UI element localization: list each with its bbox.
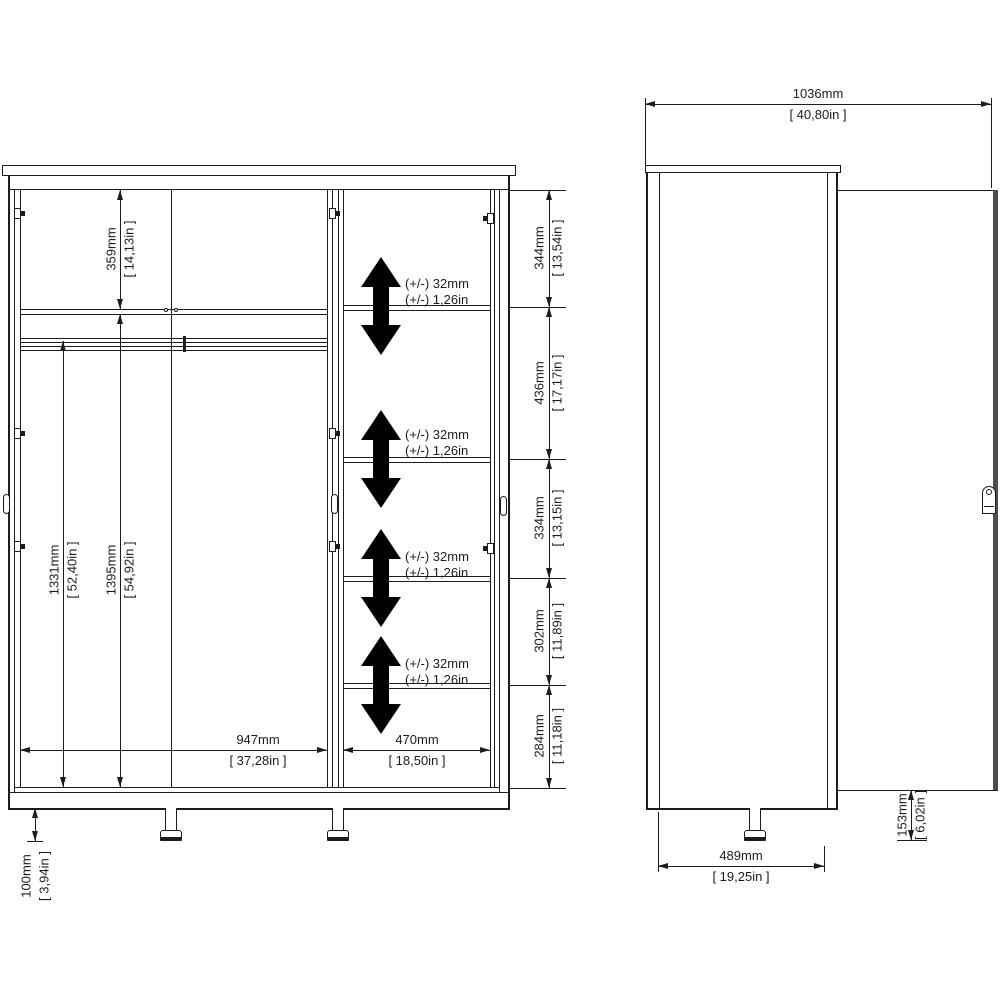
adjust-note-mm: (+/-) 32mm: [405, 427, 469, 443]
hinge-icon: [14, 208, 21, 219]
arrowhead-icon: [546, 297, 552, 307]
dim-in: [ 13,54in ]: [551, 219, 564, 276]
dim-mm: 153mm: [896, 793, 909, 836]
dim-344-label: 344mm [ 13,54in ]: [533, 219, 564, 276]
dim-947-label: 947mm [ 37,28in ]: [229, 733, 286, 767]
dim-in: [ 40,80in ]: [789, 108, 846, 121]
dim-359-label: 359mm [ 14,13in ]: [105, 220, 136, 277]
hinge-icon: [329, 428, 336, 439]
leg: [165, 808, 177, 831]
dim-in: [ 3,94in ]: [38, 851, 51, 901]
handle-icon: [331, 494, 338, 514]
arrowhead-icon: [317, 747, 327, 753]
extension-line: [510, 307, 566, 308]
dim-mm: 284mm: [533, 714, 546, 757]
dim-100-label: 100mm [ 3,94in ]: [20, 851, 51, 901]
double-arrow-icon: [361, 257, 401, 355]
divider-line: [343, 189, 344, 787]
shelf-adjust-note: (+/-) 32mm (+/-) 1,26in: [405, 427, 469, 459]
arrowhead-icon: [117, 314, 123, 324]
arrowhead-icon: [814, 863, 824, 869]
arrowhead-icon: [60, 777, 66, 787]
dim-mm: 1036mm: [793, 87, 844, 100]
extension-line: [510, 788, 566, 789]
extension-line: [824, 846, 825, 872]
drawing-line: [8, 176, 10, 808]
dim-470-label: 470mm [ 18,50in ]: [388, 733, 445, 767]
adjust-note-mm: (+/-) 32mm: [405, 656, 469, 672]
arrowhead-icon: [546, 459, 552, 469]
drawing-line: [508, 176, 510, 808]
hinge-icon: [329, 541, 336, 552]
hinge-icon: [487, 543, 494, 554]
arrowhead-icon: [343, 747, 353, 753]
hanging-rail-line: [20, 346, 327, 347]
arrowhead-icon: [20, 747, 30, 753]
handle-icon: [500, 496, 507, 516]
dim-mm: 489mm: [719, 849, 762, 862]
adjustable-foot-icon: [160, 830, 182, 841]
hanging-rail-line: [20, 342, 327, 343]
adjust-note-in: (+/-) 1,26in: [405, 672, 469, 688]
double-arrow-icon: [361, 410, 401, 508]
arrowhead-icon: [32, 808, 38, 818]
dim-mm: 1331mm: [48, 545, 61, 596]
arrowhead-icon: [546, 307, 552, 317]
extension-line: [510, 190, 566, 191]
extension-line: [991, 98, 992, 188]
hinge-icon: [487, 213, 494, 224]
arrowhead-icon: [546, 675, 552, 685]
divider-line: [338, 189, 339, 787]
extension-line: [510, 459, 566, 460]
screw-hole-icon: [164, 308, 168, 312]
rail-bracket: [183, 336, 186, 352]
double-arrow-icon: [361, 636, 401, 734]
drawing-line: [827, 173, 828, 808]
door-seam-line: [171, 189, 172, 787]
arrowhead-icon: [32, 831, 38, 841]
arrowhead-icon: [117, 299, 123, 309]
arrowhead-icon: [546, 568, 552, 578]
extension-line: [645, 98, 646, 165]
arrowhead-icon: [546, 778, 552, 788]
drawing-line: [646, 173, 648, 808]
door-edge-line: [490, 189, 491, 787]
adjustable-foot-icon: [327, 830, 349, 841]
open-door-top-edge: [838, 190, 998, 191]
handle-icon: [3, 494, 10, 514]
dim-mm: 334mm: [533, 496, 546, 539]
dim-mm: 302mm: [533, 609, 546, 652]
hanging-rail-line: [20, 350, 327, 351]
dim-334-label: 334mm [ 13,15in ]: [533, 489, 564, 546]
dim-mm: 1395mm: [105, 545, 118, 596]
double-arrow-icon: [361, 529, 401, 627]
arrowhead-icon: [546, 578, 552, 588]
leg: [749, 808, 761, 831]
arrowhead-icon: [117, 190, 123, 200]
top-panel: [2, 165, 516, 176]
top-panel: [645, 165, 841, 173]
door-edge-line: [494, 189, 495, 787]
arrowhead-icon: [546, 685, 552, 695]
adjust-note-in: (+/-) 1,26in: [405, 292, 469, 308]
arrowhead-icon: [117, 777, 123, 787]
dim-in: [ 11,89in ]: [551, 603, 564, 659]
shelf-adjust-note: (+/-) 32mm (+/-) 1,26in: [405, 656, 469, 688]
adjust-note-in: (+/-) 1,26in: [405, 565, 469, 581]
leg: [332, 808, 344, 831]
drawing-line: [646, 808, 838, 810]
dim-in: [ 17,17in ]: [551, 354, 564, 411]
arrowhead-icon: [546, 190, 552, 200]
dim-mm: 359mm: [105, 227, 118, 270]
hanging-rail-line: [20, 338, 327, 339]
dim-in: [ 54,92in ]: [123, 541, 136, 598]
hinge-icon: [14, 541, 21, 552]
divider-line: [327, 189, 328, 787]
drawing-line: [499, 189, 500, 792]
handle-detail-line: [984, 506, 994, 507]
drawing-line: [836, 173, 838, 808]
adjust-note-mm: (+/-) 32mm: [405, 549, 469, 565]
drawing-line: [8, 808, 510, 810]
hinge-icon: [329, 208, 336, 219]
drawing-line: [14, 189, 15, 792]
dim-in: [ 37,28in ]: [229, 754, 286, 767]
dim-302-label: 302mm [ 11,89in ]: [533, 603, 564, 659]
arrowhead-icon: [480, 747, 490, 753]
shelf-line: [20, 314, 327, 315]
dim-1036-label: 1036mm [ 40,80in ]: [789, 87, 846, 121]
dim-in: [ 13,15in ]: [551, 489, 564, 546]
drawing-line: [8, 189, 510, 190]
dim-153-label: 153mm [ 6,02in ]: [896, 790, 927, 840]
dim-in: [ 18,50in ]: [388, 754, 445, 767]
divider-line: [332, 189, 333, 787]
drawing-line: [14, 787, 500, 788]
extension-line: [510, 578, 566, 579]
door-edge-line: [20, 189, 21, 787]
dim-in: [ 14,13in ]: [123, 220, 136, 277]
extension-line: [27, 841, 43, 842]
dim-mm: 436mm: [533, 361, 546, 404]
screw-hole-icon: [174, 308, 178, 312]
dim-in: [ 6,02in ]: [914, 790, 927, 840]
handle-detail-icon: [986, 489, 992, 495]
arrowhead-icon: [645, 101, 655, 107]
dim-mm: 947mm: [236, 733, 279, 746]
shelf-adjust-note: (+/-) 32mm (+/-) 1,26in: [405, 276, 469, 308]
adjust-note-mm: (+/-) 32mm: [405, 276, 469, 292]
dim-1331-label: 1331mm [ 52,40in ]: [48, 541, 79, 598]
dim-mm: 344mm: [533, 226, 546, 269]
drawing-line: [8, 792, 510, 793]
arrowhead-icon: [658, 863, 668, 869]
hinge-icon: [14, 428, 21, 439]
dim-mm: 470mm: [395, 733, 438, 746]
extension-line: [897, 840, 927, 841]
arrowhead-icon: [60, 341, 66, 351]
extension-line: [510, 685, 566, 686]
dim-in: [ 11,18in ]: [551, 708, 564, 764]
drawing-line: [659, 173, 660, 808]
dim-1395-label: 1395mm [ 54,92in ]: [105, 541, 136, 598]
dim-284-label: 284mm [ 11,18in ]: [533, 708, 564, 764]
wardrobe-technical-drawing: (+/-) 32mm (+/-) 1,26in (+/-) 32mm (+/-)…: [0, 0, 1000, 1000]
shelf-adjust-note: (+/-) 32mm (+/-) 1,26in: [405, 549, 469, 581]
dim-436-label: 436mm [ 17,17in ]: [533, 354, 564, 411]
dim-in: [ 19,25in ]: [712, 870, 769, 883]
dim-489-label: 489mm [ 19,25in ]: [712, 849, 769, 883]
adjust-note-in: (+/-) 1,26in: [405, 443, 469, 459]
adjustable-foot-icon: [744, 830, 766, 841]
arrowhead-icon: [981, 101, 991, 107]
dim-mm: 100mm: [20, 854, 33, 897]
dim-in: [ 52,40in ]: [66, 541, 79, 598]
arrowhead-icon: [546, 449, 552, 459]
